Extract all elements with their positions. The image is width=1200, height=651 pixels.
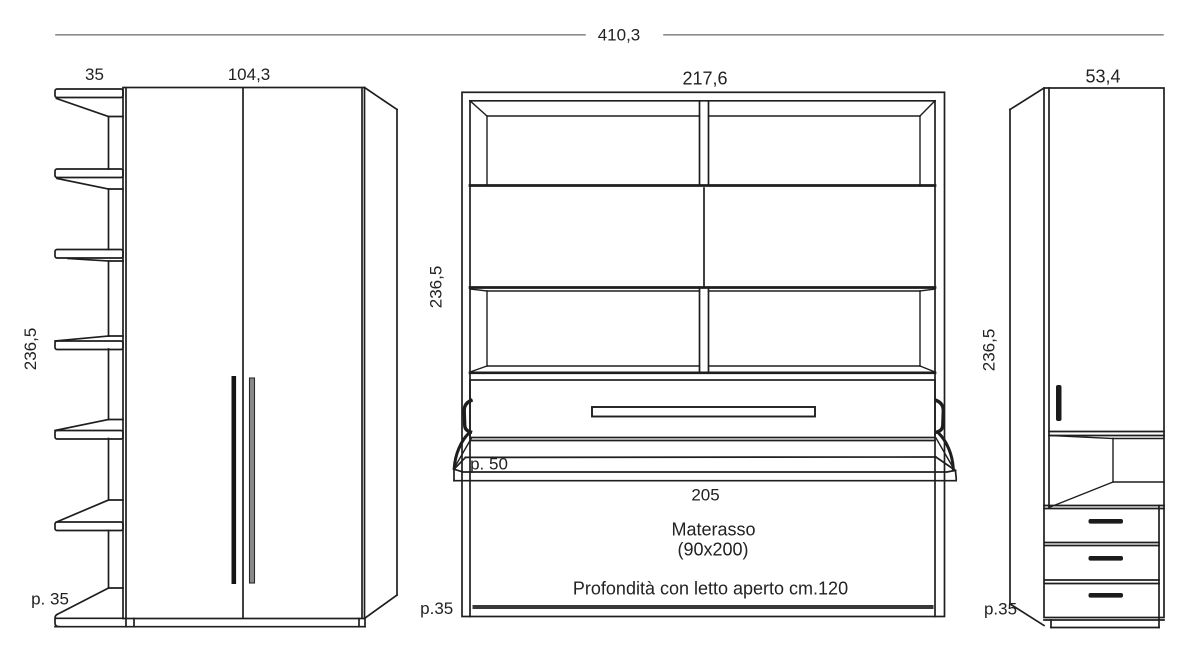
svg-text:(90x200): (90x200) [677, 540, 748, 560]
svg-text:53,4: 53,4 [1085, 67, 1120, 87]
svg-text:236,5: 236,5 [427, 266, 446, 309]
svg-text:p.35: p.35 [420, 599, 453, 618]
svg-text:35: 35 [85, 65, 104, 84]
svg-text:p. 50: p. 50 [470, 455, 508, 474]
svg-text:217,6: 217,6 [682, 69, 727, 89]
svg-text:236,5: 236,5 [980, 329, 999, 372]
svg-text:236,5: 236,5 [21, 328, 40, 371]
svg-text:p. 35: p. 35 [31, 589, 69, 608]
svg-text:Profondità con letto aperto cm: Profondità con letto aperto cm.120 [573, 579, 848, 599]
svg-text:104,3: 104,3 [228, 65, 271, 84]
svg-text:p.35: p.35 [984, 600, 1017, 619]
svg-text:410,3: 410,3 [598, 26, 641, 45]
svg-text:Materasso: Materasso [671, 520, 755, 540]
svg-text:205: 205 [691, 486, 719, 505]
